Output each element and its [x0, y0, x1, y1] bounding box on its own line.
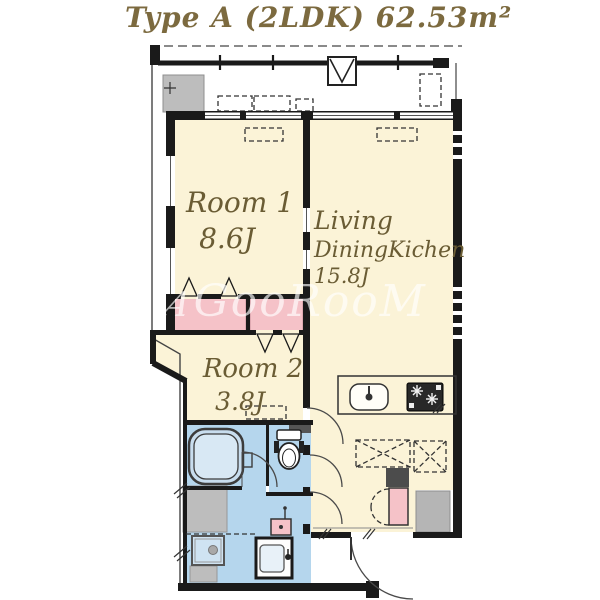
balcony-right-corner — [451, 99, 462, 112]
closet-room1 — [168, 296, 246, 331]
floor-plan-drawing: Room 1 8.6J Living DiningKichen 15.8J Ro… — [0, 0, 600, 600]
ldk-name-line1: Living — [313, 206, 393, 235]
room2-size-label: 3.8J — [215, 387, 267, 416]
wet-area-top-wall — [183, 420, 313, 425]
west-wall-upper — [166, 111, 175, 335]
ldk-size-label: 15.8J — [314, 264, 371, 288]
pipe-space-gray-small — [190, 566, 217, 582]
south-wall — [178, 583, 374, 591]
room2-name-label: Room 2 — [202, 354, 303, 384]
washbasin-vanity — [256, 538, 292, 578]
room1-size-label: 8.6J — [199, 222, 257, 255]
floor-plan-page: Type A (2LDK) 62.53m² — [0, 0, 600, 600]
porch-wall-right — [413, 532, 462, 538]
ldk-floor — [310, 120, 453, 532]
west-outer-wall-mid — [150, 332, 156, 364]
meter-box-gray — [416, 491, 450, 532]
kitchen-sink — [350, 384, 388, 410]
closet-room2 — [250, 296, 303, 331]
room1-name-label: Room 1 — [185, 186, 294, 219]
bath-toilet-divider — [266, 425, 269, 486]
railing-end-cap — [433, 58, 449, 68]
ldk-north-window — [313, 112, 453, 119]
kitchen-stove — [407, 383, 443, 411]
duct-pillar — [386, 468, 409, 487]
toilet-bottom-wall — [266, 492, 313, 496]
pipe-space-gray — [183, 486, 227, 532]
room1-north-window — [205, 112, 301, 119]
ldk-name-line2: DiningKichen — [313, 238, 465, 263]
bathroom-bottom-wall — [183, 486, 242, 490]
closet-mid-wall — [246, 294, 250, 335]
porch-wall-left — [311, 532, 351, 538]
shaft-symbol — [328, 57, 356, 85]
balcony-ac-unit — [163, 75, 204, 112]
plan-title: Type A (2LDK) 62.53m² — [125, 1, 475, 34]
washing-machine-pan — [192, 536, 224, 565]
